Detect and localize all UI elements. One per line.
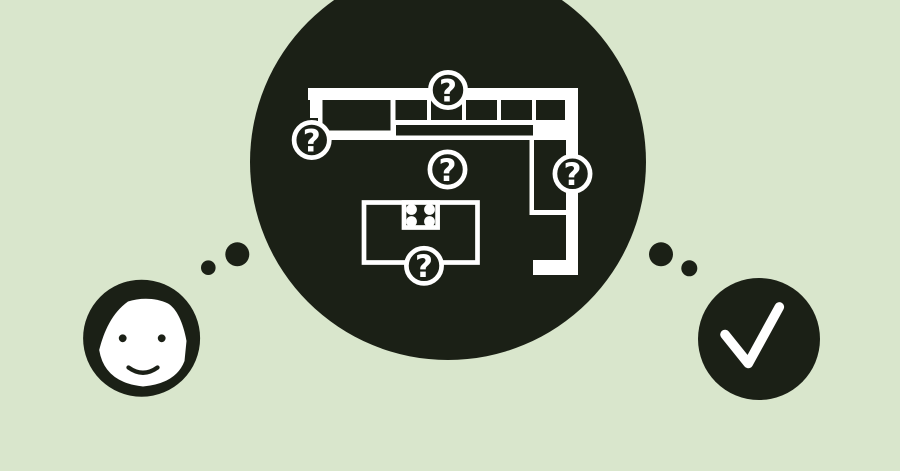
- left-eye: [119, 334, 127, 342]
- plan-cabinet-cell: [466, 100, 497, 120]
- right-eye: [158, 334, 166, 342]
- thought-bubble: ? ? ? ? ?: [250, 0, 646, 360]
- thought-dot-large-left: [225, 242, 249, 266]
- plan-counter-strip: [396, 125, 533, 136]
- plan-cabinet-cell: [396, 100, 428, 120]
- question-badge-island: ?: [406, 248, 441, 285]
- question-badge-middle: ?: [430, 152, 465, 189]
- thought-dot-small-left: [201, 260, 216, 275]
- plan-cabinet-cell: [501, 100, 532, 120]
- kitchen-planning-illustration: ? ? ? ? ?: [0, 0, 900, 471]
- plan-burner: [406, 216, 417, 227]
- question-mark: ?: [439, 73, 457, 109]
- question-badge-top: ?: [430, 72, 465, 109]
- plan-burner: [424, 204, 435, 215]
- plan-burner: [406, 204, 417, 215]
- plan-burner: [424, 216, 435, 227]
- thought-trail-right: [649, 242, 697, 276]
- thought-dot-small-right: [681, 260, 697, 276]
- thought-dot-large-right: [649, 242, 673, 266]
- question-mark: ?: [303, 123, 321, 159]
- plan-bottom-bench: [533, 260, 578, 275]
- question-badge-left: ?: [294, 122, 329, 159]
- plan-right-counter-connector: [530, 210, 567, 215]
- question-badge-right: ?: [555, 156, 590, 193]
- plan-right-counter-inner-edge: [530, 140, 535, 212]
- person-face-icon: [83, 280, 200, 397]
- question-mark: ?: [564, 157, 582, 193]
- approval-check-icon: [698, 278, 820, 400]
- plan-sink-cabinet-cell: [323, 100, 391, 131]
- thought-trail-left: [201, 242, 249, 275]
- question-mark: ?: [415, 249, 433, 285]
- question-mark: ?: [439, 153, 457, 189]
- illustration-canvas: ? ? ? ? ?: [0, 0, 900, 471]
- plan-cabinet-cell: [536, 100, 565, 120]
